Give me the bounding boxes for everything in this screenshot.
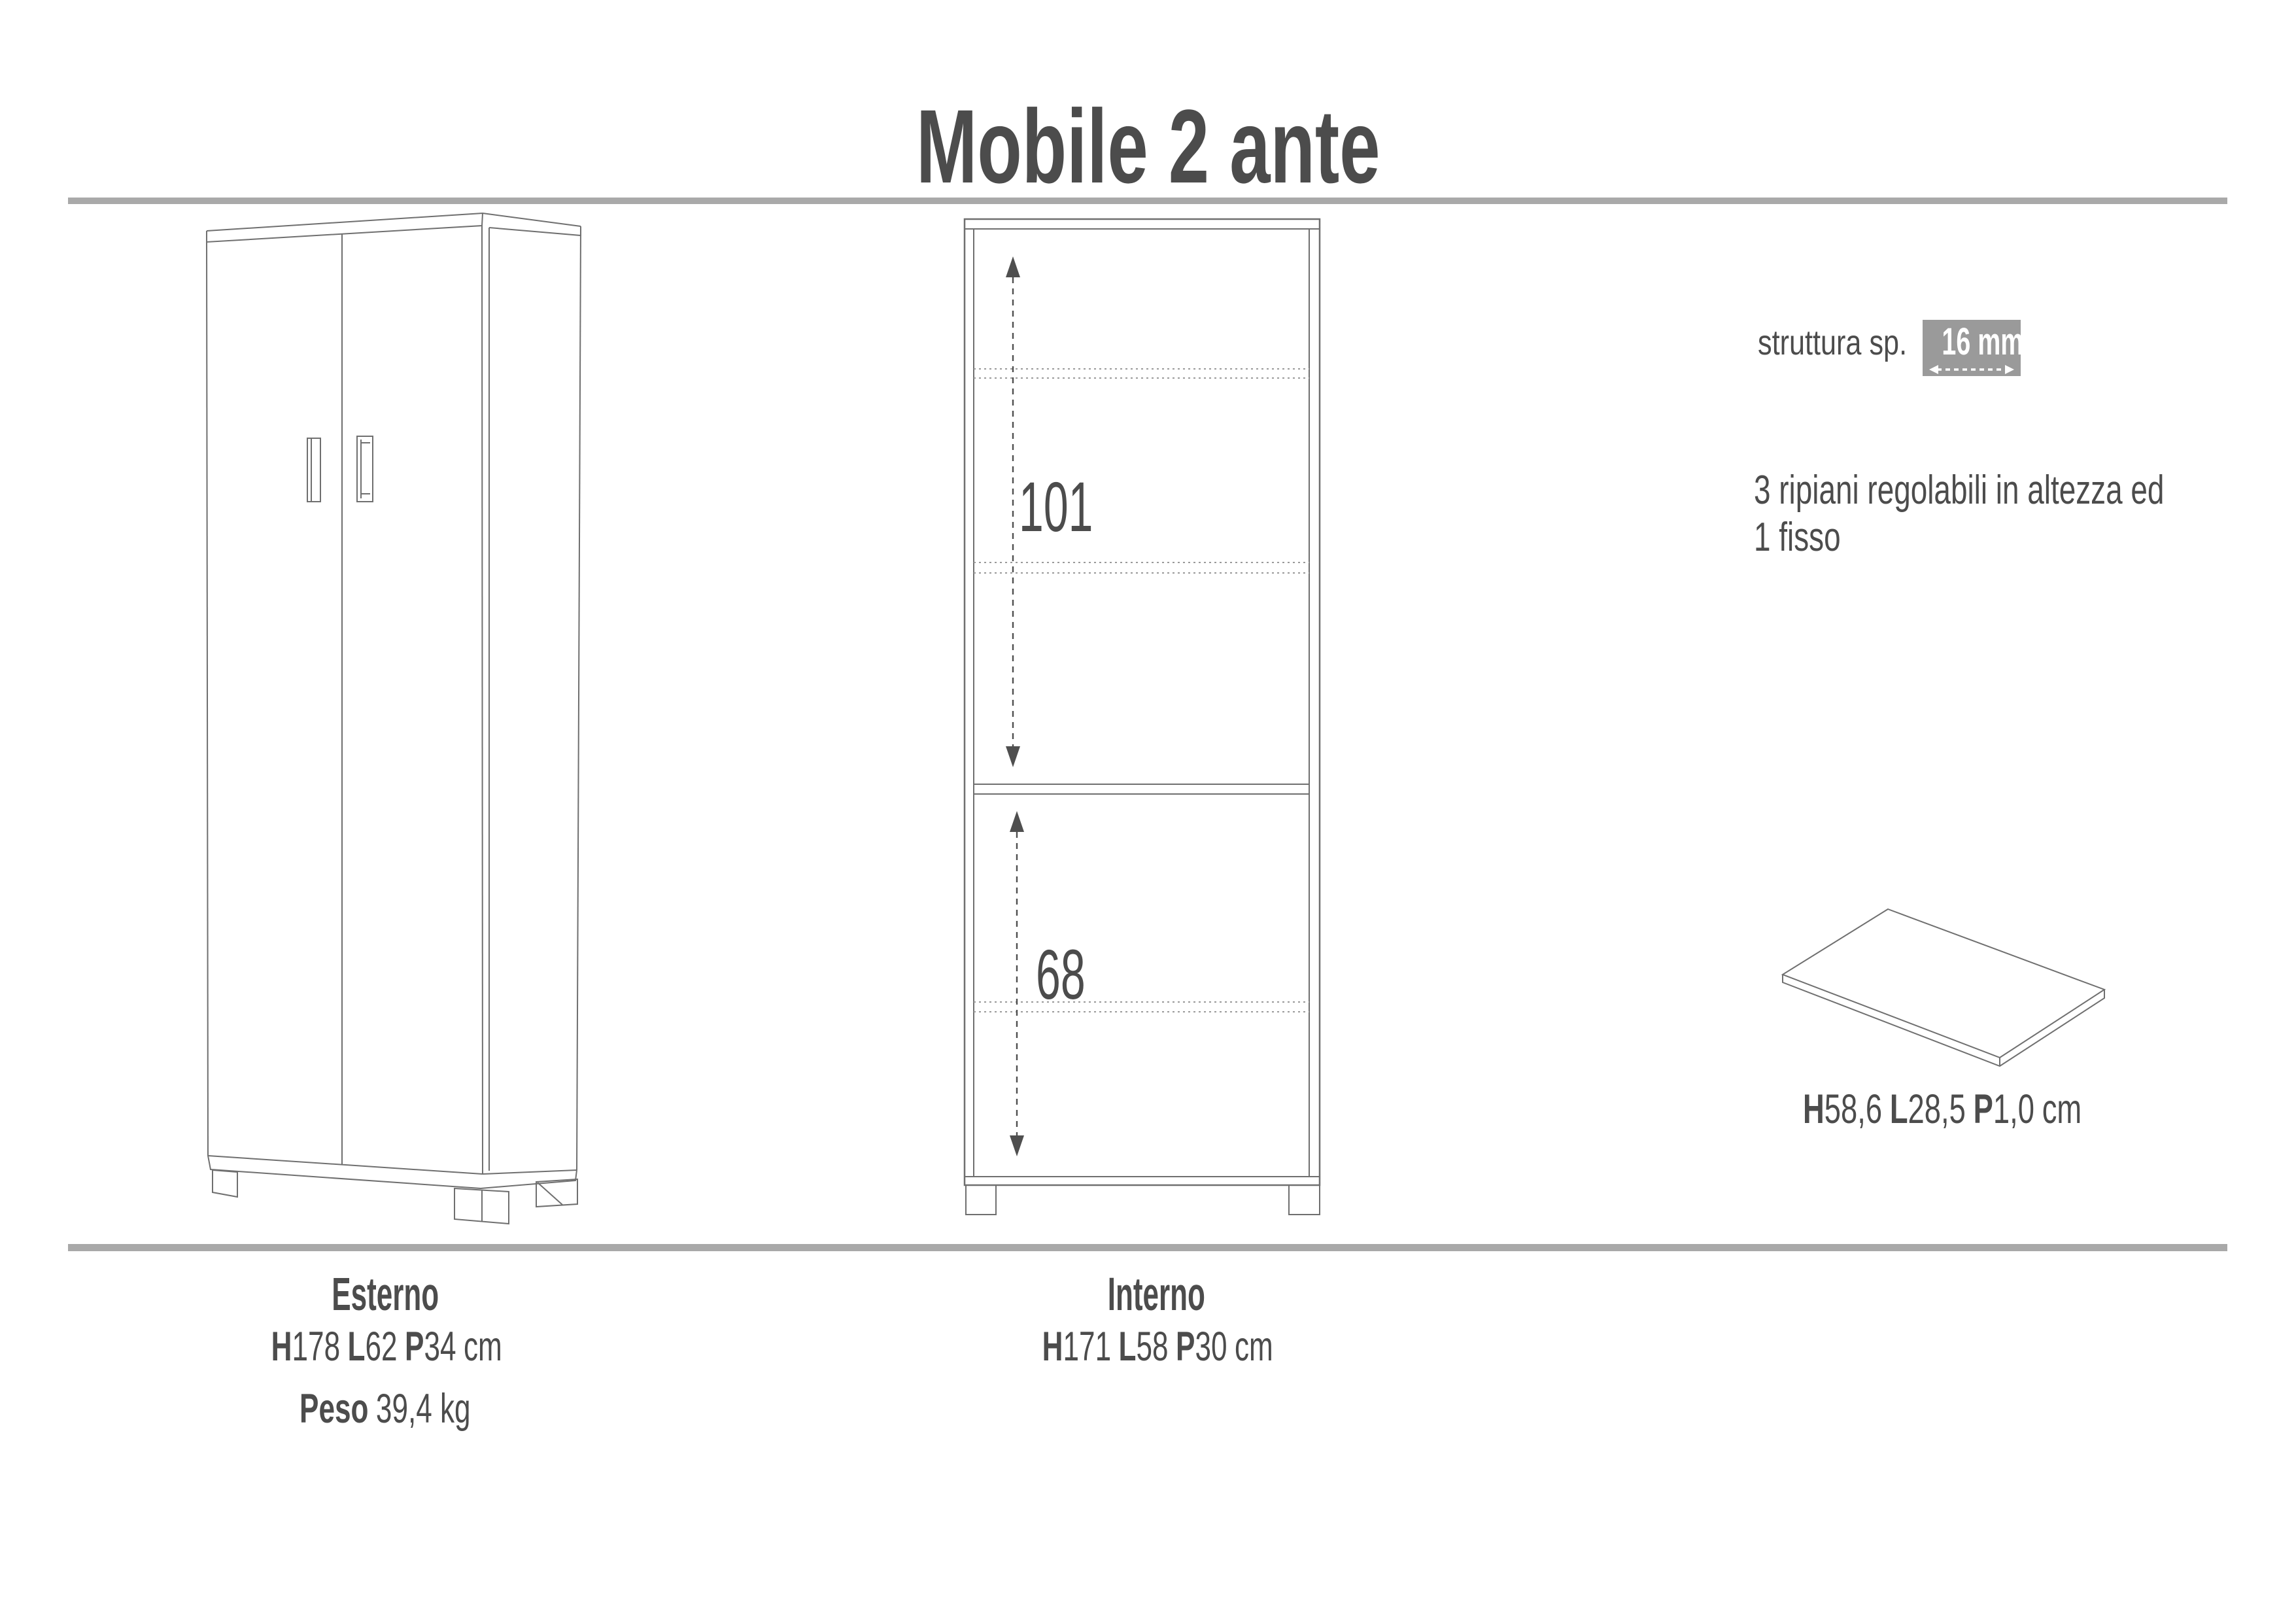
technical-drawings (0, 0, 2296, 1624)
dim-arrow-lower (1010, 811, 1024, 1156)
structure-thickness-value: 16 mm (1923, 322, 2021, 362)
upper-height-dimension: 101 (1019, 466, 1137, 547)
spec-sheet-page: Mobile 2 ante (0, 0, 2296, 1624)
structure-thickness-label: struttura sp. (1758, 322, 1944, 363)
interior-dimensions: H171L58P30cm (993, 1323, 1320, 1370)
shelf-panel-drawing (1783, 909, 2104, 1066)
exterior-dimensions: H178L62P34cm (222, 1323, 549, 1370)
cabinet-exterior-drawing (207, 213, 581, 1224)
dim-arrow-upper (1006, 256, 1020, 767)
fixed-shelf (974, 784, 1309, 794)
shelves-note: 3 ripiani regolabili in altezza ed 1 fis… (1754, 467, 2296, 561)
cabinet-interior-drawing (965, 219, 1320, 1215)
foot-left (966, 1185, 996, 1215)
door-handle-right (357, 436, 373, 502)
weight-row: Peso39,4 kg (222, 1385, 549, 1432)
shelf-panel-dimensions: H58,6L28,5P1,0cm (1803, 1086, 2190, 1133)
door-handle-left (307, 438, 320, 502)
lower-height-dimension: 68 (1036, 933, 1114, 1015)
foot-right (1289, 1185, 1320, 1215)
thickness-arrow-icon (1928, 363, 2015, 376)
exterior-section-label: Esterno (222, 1268, 549, 1321)
foot-front-left (213, 1170, 237, 1197)
interior-section-label: Interno (993, 1268, 1320, 1321)
structure-thickness-badge: 16 mm (1923, 320, 2021, 376)
